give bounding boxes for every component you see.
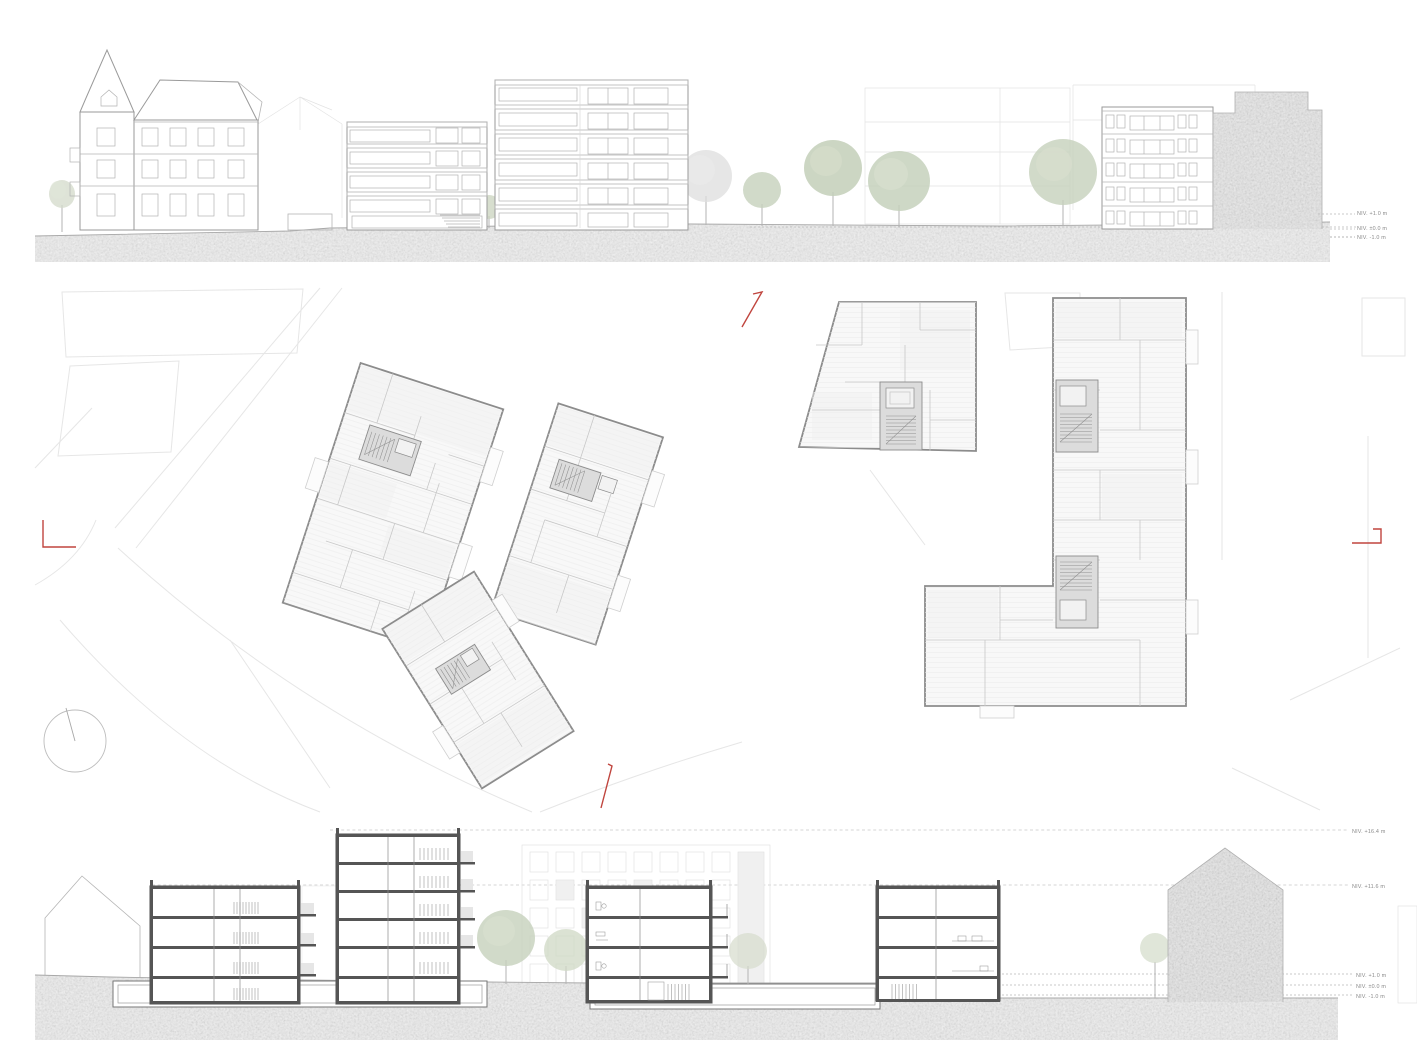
elevation-gray-mass (1213, 92, 1322, 229)
plan-building-2 (491, 403, 675, 648)
north-arrow (44, 708, 106, 772)
balconies (300, 903, 316, 977)
level-label: NIV. ±0.0 m (1356, 984, 1386, 990)
section-level-labels: NIV. +16.4 m NIV. +11.6 m NIV. +1.0 m NI… (1352, 829, 1387, 1000)
section-marker-left (43, 520, 76, 547)
villa-elevation (70, 50, 332, 230)
balconies (460, 851, 475, 949)
elevation-building-b (495, 80, 688, 230)
panel-cross-section: NIV. +16.4 m NIV. +11.6 m NIV. +1.0 m NI… (35, 828, 1417, 1045)
level-label: NIV. +16.4 m (1352, 829, 1386, 835)
section-marker-right (1352, 529, 1381, 543)
edge-context-block (1398, 906, 1417, 1003)
section-building-2 (336, 828, 475, 1004)
tree (743, 172, 781, 226)
section-building-1 (150, 880, 316, 1004)
section-marker-bottom (601, 764, 612, 808)
tree (49, 180, 75, 232)
architectural-sheet: NIV. +1.0 m NIV. ±0.0 m NIV. -1.0 m (0, 0, 1417, 1063)
level-label: NIV. +11.6 m (1352, 884, 1385, 890)
panel-site-plan (35, 288, 1405, 812)
panel-street-elevation: NIV. +1.0 m NIV. ±0.0 m NIV. -1.0 m (35, 50, 1388, 264)
tree (804, 140, 862, 226)
elevation-building-a (347, 122, 487, 230)
level-label: NIV. -1.0 m (1356, 994, 1385, 1000)
level-label: NIV. +1.0 m (1356, 973, 1387, 979)
context-lines (35, 288, 1405, 812)
level-label: NIV. -1.0 m (1357, 235, 1386, 241)
level-label: NIV. +1.0 m (1357, 211, 1388, 217)
tree (1029, 139, 1097, 226)
level-label: NIV. ±0.0 m (1357, 226, 1387, 232)
tree (477, 910, 535, 984)
gray-gabled-house (1168, 848, 1283, 1002)
tree (1140, 933, 1170, 998)
elevation-building-c (1102, 107, 1213, 229)
tree (544, 929, 588, 984)
base-wall (288, 214, 332, 230)
plan-building-4 (799, 302, 976, 451)
section-building-4 (876, 880, 1000, 1002)
section-marker-top (742, 292, 762, 327)
tree (868, 151, 930, 227)
section-building-3 (586, 880, 728, 1003)
balconies (712, 904, 728, 979)
villa-balcony (70, 148, 80, 162)
